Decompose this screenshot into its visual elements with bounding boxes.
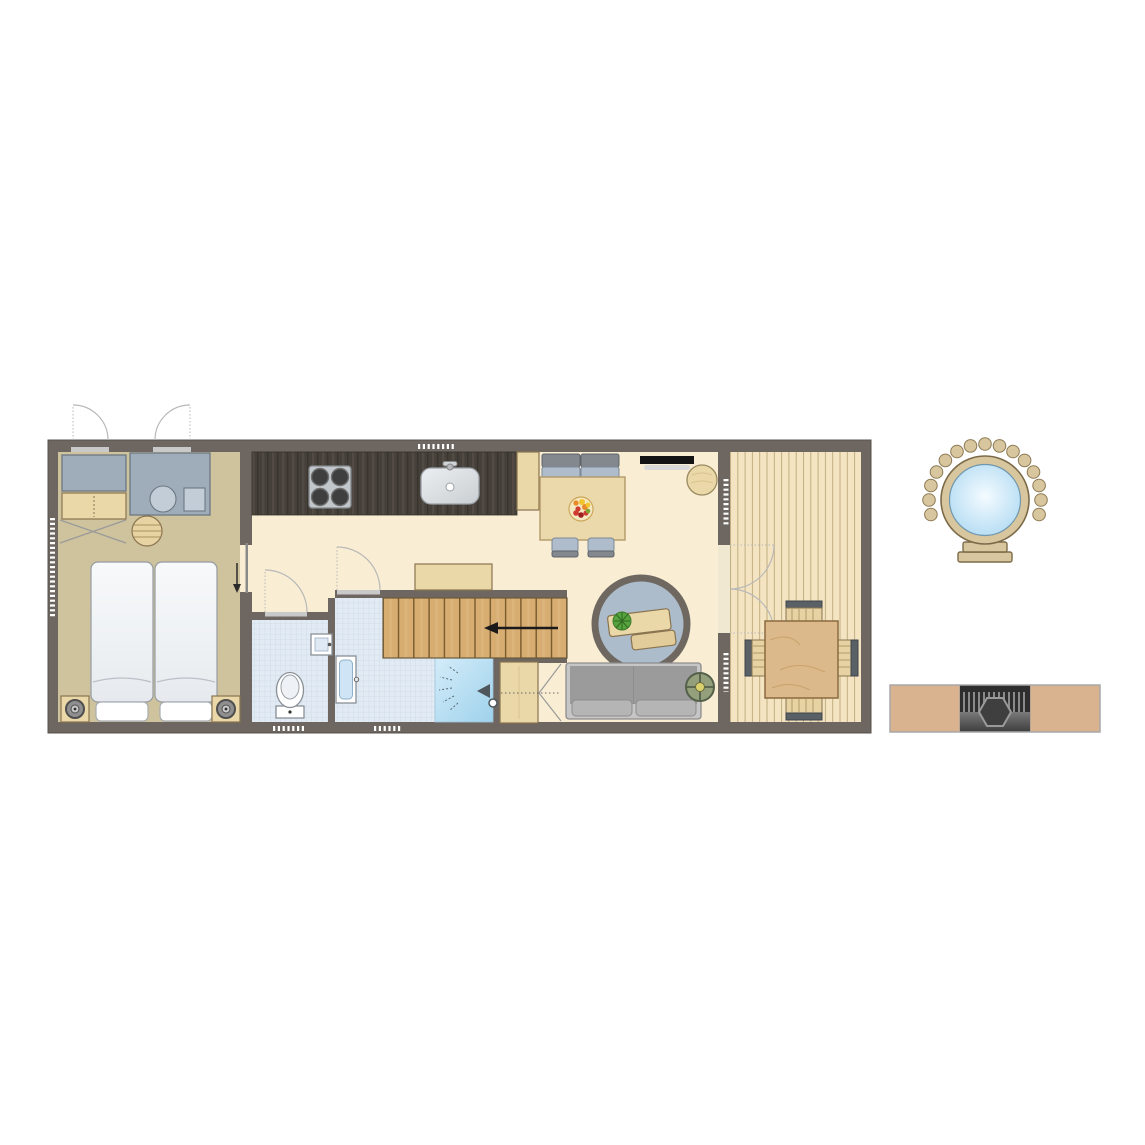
floorplan-canvas [0, 0, 1145, 1145]
bath-washbasin [336, 656, 359, 703]
vanity-unit [130, 453, 210, 515]
sideboard [415, 564, 492, 590]
fruit-bowl [569, 497, 593, 521]
round-pouf [687, 465, 717, 495]
lamp-right [217, 700, 235, 718]
staircase [383, 598, 567, 658]
deck-chair-left [745, 640, 767, 676]
deck-table [765, 621, 838, 698]
toilet [276, 673, 304, 719]
round-side-table [686, 673, 714, 701]
sofa-cushion-left [572, 700, 632, 716]
mirror-cabinet [311, 634, 332, 655]
deck-chair-right [836, 640, 858, 676]
wardrobe [62, 455, 126, 491]
entrance-door-leaves [73, 406, 190, 440]
sink-drain [446, 483, 454, 491]
floorplan-svg [0, 0, 1145, 1145]
deck-chair-bottom [786, 698, 822, 720]
hot-tub-water [950, 465, 1021, 536]
vanity-basin [150, 486, 176, 512]
entrance-door-arcs [73, 405, 190, 440]
deck-chair-top [786, 601, 822, 623]
mattress-right [155, 562, 217, 702]
hot-tub [923, 438, 1048, 562]
mattress-left [91, 562, 153, 702]
lamp-left [66, 700, 84, 718]
sliding-door-panel [246, 543, 249, 593]
pillow-right [160, 702, 212, 721]
bbq-top-right [1030, 685, 1100, 732]
pillow-left [96, 702, 148, 721]
tall-cabinet [517, 452, 539, 510]
bbq-top-left [890, 685, 960, 732]
stool [132, 516, 162, 546]
sofa [566, 663, 701, 719]
bbq-table [890, 685, 1100, 732]
plant [613, 612, 631, 630]
bbq-knob-hexagon [979, 698, 1011, 726]
wall-tv [640, 456, 694, 464]
tv-shadow [644, 465, 690, 470]
sofa-cushion-right [636, 700, 696, 716]
